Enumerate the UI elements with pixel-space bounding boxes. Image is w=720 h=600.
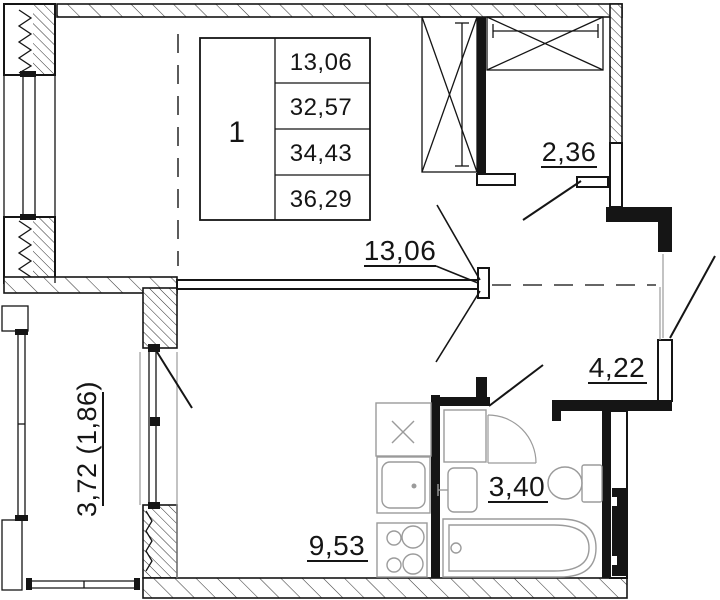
fridge-unit [376,403,431,456]
floor-plan: 1 13,06 32,57 34,43 36,29 13,06 2,36 4,2… [0,0,720,600]
kitchen-sink-drain [412,484,417,489]
wall-bath-top-right [552,400,672,411]
washing-machine [444,410,486,462]
stove-burner [387,531,401,545]
stove-burner [387,558,401,572]
balcony-door-leaf [157,352,192,408]
window-node [150,417,160,426]
stove-burner [403,554,423,574]
loggia-door-leaf [523,181,581,220]
door-jamb [478,268,489,298]
wall-shaft [477,17,486,174]
window-node [148,502,160,509]
table-area-row: 34,43 [290,140,353,167]
leader-line [436,291,480,362]
table-area-row: 36,29 [290,186,353,213]
wall-pier-hatch [33,218,54,282]
window-node [148,344,160,352]
door-jamb [477,174,515,185]
window-node [134,578,140,590]
window-node [20,214,36,220]
bathtub-inner [449,525,589,571]
bathroom-door-leaf [489,365,543,406]
table-area-row: 13,06 [290,49,353,76]
label-living-area: 13,06 [364,235,437,266]
wall-pier-hatch [33,5,54,74]
stove-burner [402,526,424,548]
label-balcony-area: 3,72 (1,86) [72,381,102,517]
entry-door-leaf [670,256,715,338]
balcony-side-box [2,306,28,331]
bathroom-door-arc [488,415,536,463]
bathroom-sink [448,468,477,512]
kitchen-sink [377,457,430,513]
wall-bath-stub [552,411,561,421]
table-unit-number: 1 [228,116,245,149]
wall-top-band [57,4,622,17]
label-loggia-area: 2,36 [542,137,597,167]
wall-right-top [610,4,622,143]
wall-bath-right [602,411,610,578]
wall-bath-stub [476,377,487,399]
window-node [20,71,36,77]
stove [377,523,427,577]
wall-right-mid [610,143,622,207]
vent-duct-notch [612,556,617,565]
floor-plan-page: 1 13,06 32,57 34,43 36,29 13,06 2,36 4,2… [0,0,720,600]
window-node [15,329,28,335]
label-bathroom-area: 3,40 [489,471,546,502]
toilet-bowl [548,467,582,499]
wall-living-kitchen [177,280,479,289]
label-hallway-area: 4,22 [589,352,646,383]
kitchen-sink-basin [382,462,425,508]
toilet-tank [582,465,602,502]
vent-duct-notch [612,497,617,506]
window-node [15,515,28,521]
wall-bottom-band [143,578,627,598]
bathtub-drain [451,543,461,553]
wall-pier-balcony-top [143,288,177,348]
table-area-row: 32,57 [290,94,353,121]
door-jamb [577,177,608,187]
wall-entry-jog [606,207,672,222]
entry-door-pier [658,340,672,401]
unit-info-table: 1 13,06 32,57 34,43 36,29 [200,38,370,220]
label-kitchen-area: 9,53 [309,530,366,561]
window-node [26,578,32,590]
wall-entry-jog [658,222,672,252]
balcony-side-box [2,520,22,590]
